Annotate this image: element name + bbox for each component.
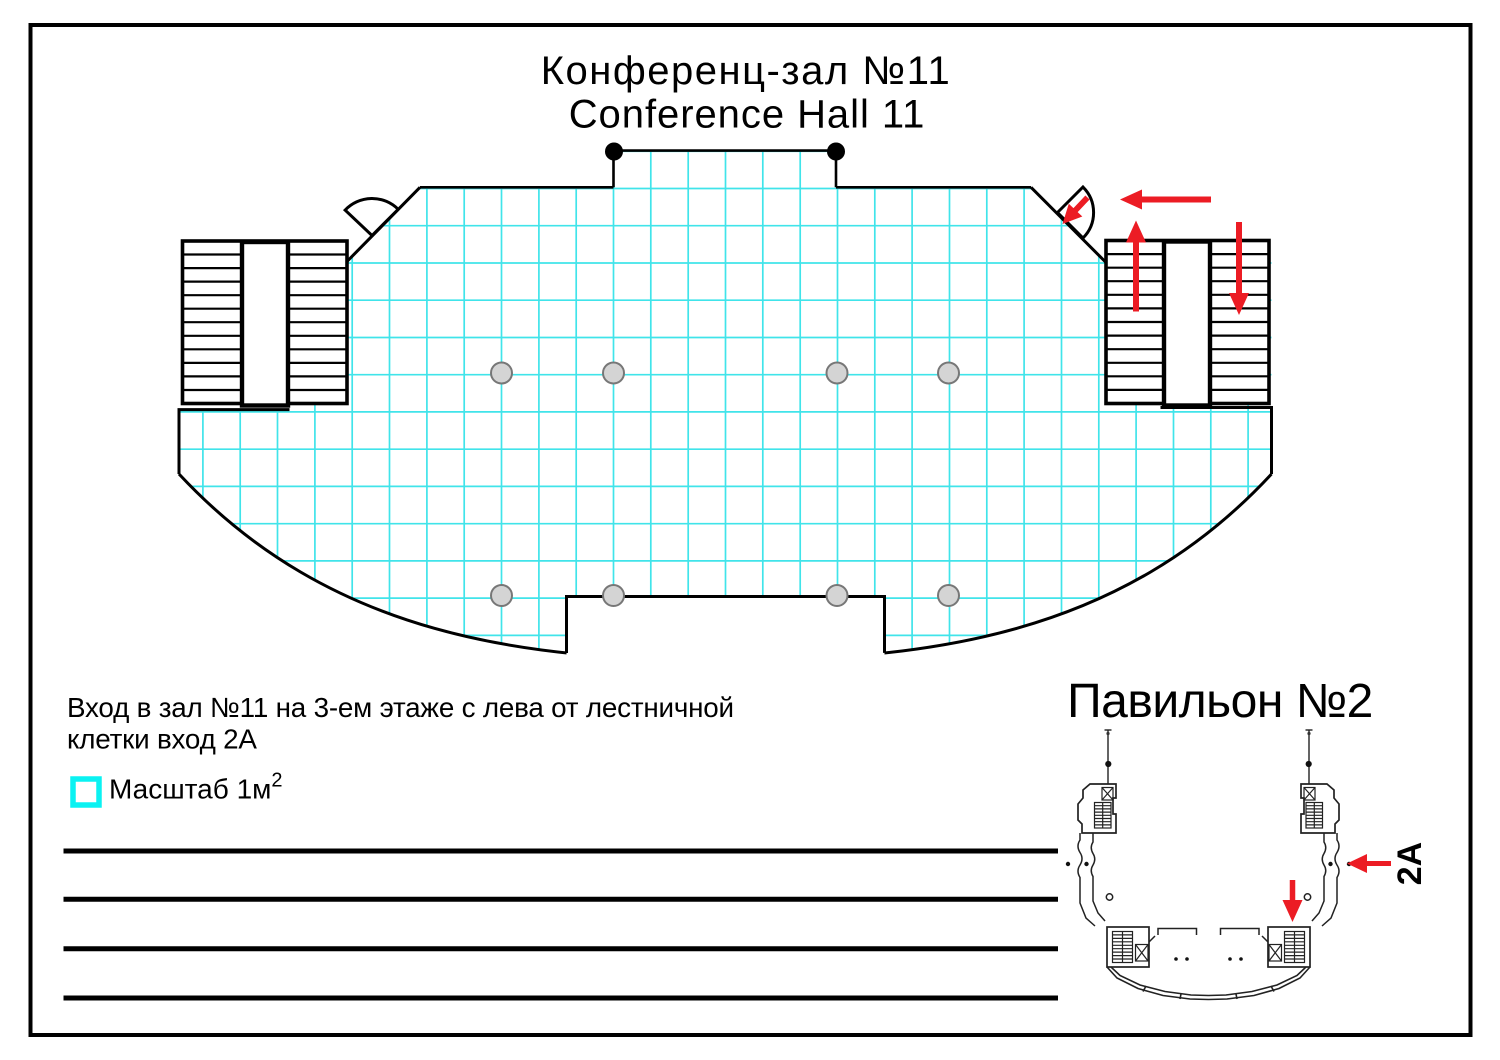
svg-text:2А: 2А (1391, 842, 1429, 885)
svg-text:клетки вход 2А: клетки вход 2А (67, 724, 257, 755)
svg-text:Вход в зал №11 на 3-ем этаже с: Вход в зал №11 на 3-ем этаже с лева от л… (67, 692, 734, 723)
svg-text:Conference Hall 11: Conference Hall 11 (569, 93, 926, 137)
svg-text:Павильон №2: Павильон №2 (1067, 675, 1373, 728)
svg-text:Конференц-зал №11: Конференц-зал №11 (541, 49, 952, 93)
svg-text:Масштаб 1м2: Масштаб 1м2 (109, 770, 283, 805)
